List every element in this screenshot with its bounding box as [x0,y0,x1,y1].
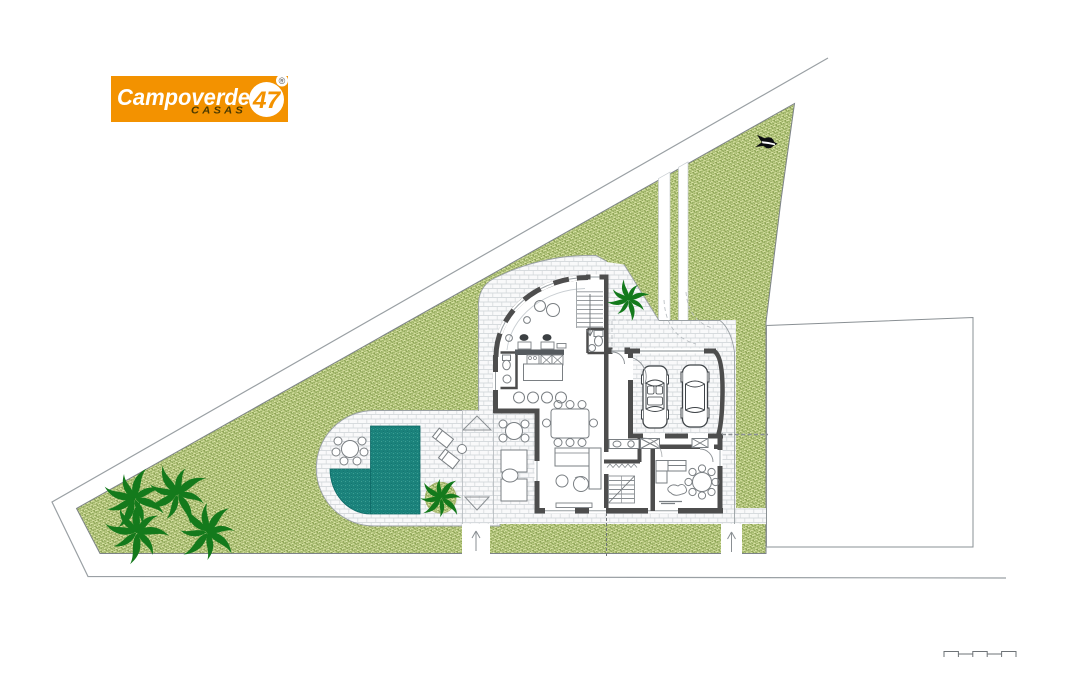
svg-text:®: ® [279,76,286,86]
svg-text:47: 47 [252,87,282,114]
svg-text:CASAS: CASAS [191,105,246,117]
